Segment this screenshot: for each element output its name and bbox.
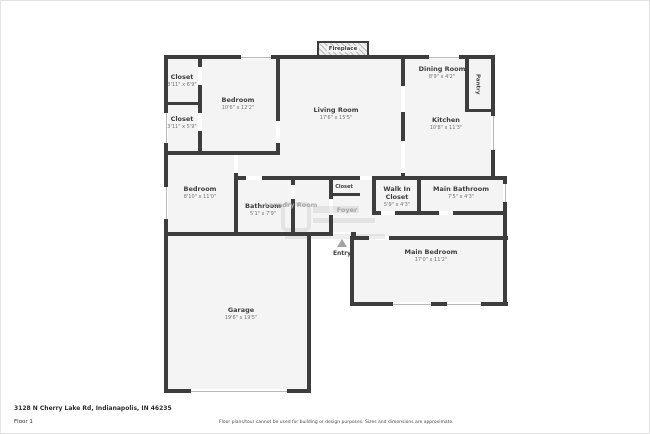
door-opening (234, 155, 238, 173)
fireplace-label: Fireplace (327, 46, 360, 53)
door-opening (246, 176, 262, 180)
wall (465, 55, 469, 112)
disclaimer-text: Floor plans/tour cannot be used for buil… (219, 420, 454, 425)
wall (164, 151, 280, 155)
floor-fill (166, 57, 491, 180)
window-marker (393, 302, 431, 306)
door-opening (439, 211, 453, 215)
window-marker (503, 184, 507, 202)
wall (164, 55, 168, 393)
watermark (279, 194, 389, 244)
window-marker (164, 113, 168, 143)
floor-fill (166, 234, 309, 391)
floor-label: Floor 1 (14, 419, 33, 425)
window-marker (429, 55, 459, 59)
floor-plan-canvas: Fireplace Closet 3'11" x 6'9" Closet 3'1… (0, 0, 650, 434)
garage-door-marker (191, 389, 287, 393)
wall (166, 102, 200, 105)
door-opening (198, 113, 202, 131)
floor-fill (352, 238, 506, 304)
wall (307, 232, 311, 393)
wall (465, 109, 493, 112)
door-opening (401, 86, 405, 112)
window-marker (241, 55, 271, 59)
window-marker (164, 187, 168, 219)
door-opening (198, 67, 202, 85)
address-text: 3128 N Cherry Lake Rd, Indianapolis, IN … (14, 405, 172, 412)
door-opening (276, 121, 280, 143)
door-opening (401, 141, 405, 173)
wall (350, 236, 354, 306)
wall (417, 176, 421, 215)
fireplace: Fireplace (317, 41, 369, 57)
room-label: Entry (333, 250, 351, 257)
door-opening (360, 176, 372, 180)
window-marker (447, 302, 481, 306)
window-marker (491, 116, 495, 150)
